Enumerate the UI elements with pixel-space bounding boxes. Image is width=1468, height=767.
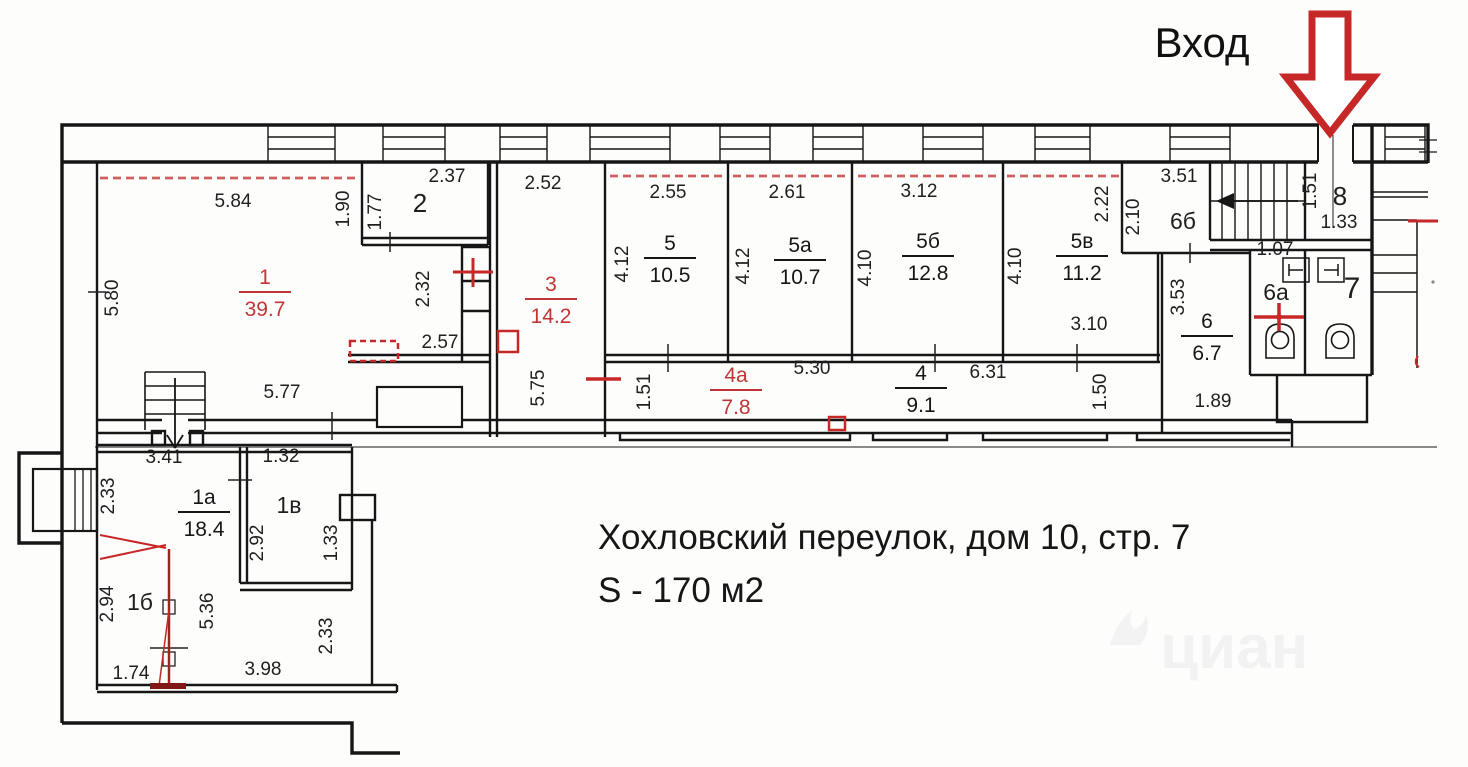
dimension-label: 6.31 (970, 362, 1007, 383)
dimension-label: 2.33 (316, 618, 337, 655)
room-area-label: 14.2 (531, 305, 572, 328)
room-area-label: 39.7 (245, 298, 286, 321)
stair-down-arrow-icon (167, 378, 183, 448)
dimension-label: 2.57 (422, 332, 459, 353)
dimension-label: 5.84 (215, 191, 252, 212)
dimension-label: 2.55 (650, 182, 687, 203)
room-number-label: 1б (127, 589, 153, 615)
red-dashed-openings (100, 176, 1119, 361)
room-number-label: 1в (276, 492, 301, 518)
room-number-label: 4 (915, 362, 927, 385)
room-number-label: 5 (664, 232, 676, 255)
dimension-label: 1.90 (333, 191, 354, 228)
dimension-label: 1.07 (1257, 239, 1294, 260)
room-area-label: 10.7 (780, 266, 821, 289)
strip-bottom-wall (97, 420, 1292, 447)
dimension-label: 3.41 (146, 447, 183, 468)
room-number-label: 4а (724, 364, 748, 387)
dimension-label: 4.12 (733, 248, 754, 285)
dimension-label: 3.53 (1168, 279, 1189, 316)
room-number-label: 3 (545, 273, 557, 296)
dimension-label: 3.51 (1161, 166, 1198, 187)
room-number-label: 6а (1263, 279, 1289, 305)
room-area-label: 6.7 (1192, 342, 1221, 365)
dimension-label: 3.12 (901, 181, 938, 202)
room-number-label: 5б (916, 230, 940, 253)
room-number-label: 2 (413, 188, 427, 218)
room-area-label: 9.1 (906, 394, 935, 417)
dimension-label: 2.33 (98, 478, 119, 515)
toilet-icon (1326, 324, 1354, 358)
room-area-label: 18.4 (184, 518, 225, 541)
watermark-bird-icon (1110, 611, 1148, 645)
dimension-label: 2.61 (769, 182, 806, 203)
address-caption: Хохловский переулок, дом 10, стр. 7 (598, 518, 1190, 557)
annex-porch-steps-icon (33, 469, 97, 531)
dimension-label: 2.10 (1123, 199, 1144, 236)
dimension-label: 5.80 (102, 280, 123, 317)
dimension-label: 5.75 (528, 370, 549, 407)
dimension-label: 1.51 (634, 374, 655, 411)
entrance-label: Вход (1154, 19, 1249, 66)
dimension-label: 1.89 (1195, 391, 1232, 412)
entrance-arrow-icon (1286, 14, 1374, 133)
room-number-label: 5а (788, 234, 812, 257)
room-area-label: 10.5 (650, 264, 691, 287)
room-area-label: 11.2 (1062, 262, 1101, 285)
watermark-text: циан (1160, 613, 1308, 682)
dimension-label: 2.22 (1092, 186, 1113, 223)
watermark-logo: циан (1110, 611, 1308, 682)
dimension-label: 5.30 (794, 358, 831, 379)
dimension-label: 2.37 (429, 166, 466, 187)
dimension-label: 2.32 (413, 271, 434, 308)
dimension-label: 1.32 (263, 446, 300, 467)
area-caption: S - 170 м2 (598, 571, 764, 610)
duct-shaft (377, 387, 462, 427)
room-number-label: 7 (1344, 272, 1361, 305)
dimension-label: 1.50 (1090, 374, 1111, 411)
dimension-label: 1.77 (365, 194, 386, 231)
room-number-label: 1а (192, 486, 216, 509)
dimension-label: 1.33 (1321, 212, 1358, 233)
room-area-label: 7.8 (721, 396, 750, 419)
dimension-label: 2.52 (525, 173, 562, 194)
room-number-label: 8 (1333, 181, 1347, 211)
window-band (268, 125, 1425, 162)
dimension-label: 1.51 (1300, 173, 1321, 210)
dimension-label: 4.10 (855, 250, 876, 287)
sink-icon (1318, 258, 1344, 282)
dimension-label: 2.94 (97, 585, 118, 622)
dimension-label: 3.10 (1071, 314, 1108, 335)
dimension-label: 5.77 (264, 382, 301, 403)
interior-walls (97, 162, 1372, 690)
dimension-label: 2.92 (247, 525, 268, 562)
room-number-label: 6б (1170, 208, 1196, 234)
dimension-label: 1.74 (113, 663, 150, 684)
entrance-steps-right (1372, 140, 1437, 368)
dimension-label: 5.36 (197, 593, 218, 630)
dimension-label: 4.12 (612, 246, 633, 283)
dimension-label: 1.33 (321, 525, 342, 562)
floor-plan: циан (0, 0, 1468, 767)
room-number-label: 5в (1071, 230, 1094, 253)
floor-plan-page: циан (0, 0, 1468, 767)
dimension-label: 3.98 (245, 659, 282, 680)
room-number-label: 6 (1201, 310, 1213, 333)
dimension-label: 4.10 (1005, 248, 1026, 285)
room-area-label: 12.8 (908, 262, 949, 285)
stair-direction-arrow-icon (1216, 193, 1298, 209)
room-number-label: 1 (259, 266, 271, 289)
